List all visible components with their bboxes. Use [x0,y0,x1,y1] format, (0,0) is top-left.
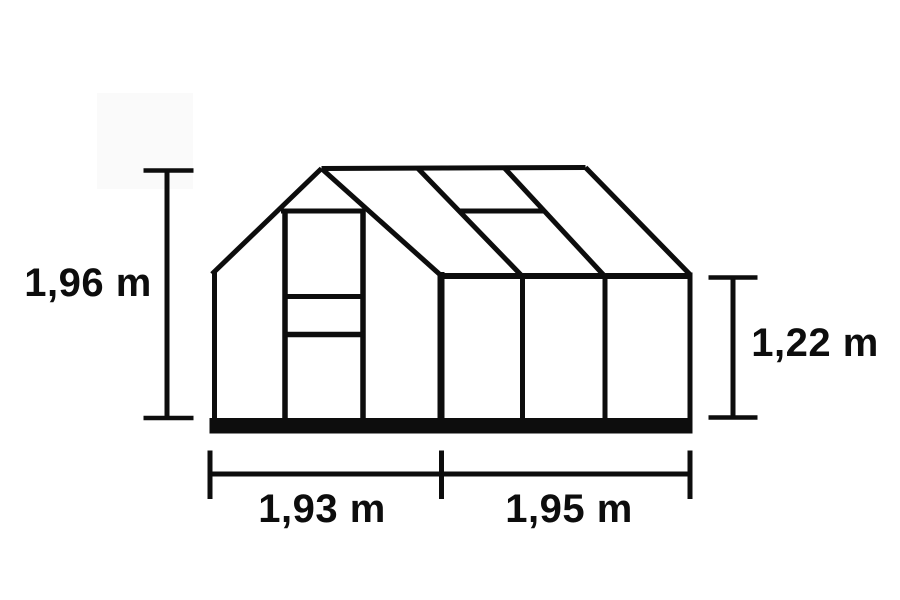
ridge-height-label: 1,96 m [24,261,152,305]
dimension-ridge-height: 1,96 m [24,171,193,419]
side-length-label: 1,95 m [505,487,633,531]
dimension-eave-height: 1,22 m [709,278,879,418]
roof-ridge [322,168,586,169]
roof [322,168,691,277]
eave-height-label: 1,22 m [751,321,879,365]
roof-glazing-bar-2 [504,168,605,277]
greenhouse-drawing [210,168,693,434]
door [281,211,366,420]
faint-background-patch [97,93,193,189]
base-sill [210,418,693,434]
dimension-bottom-widths: 1,93 m 1,95 m [210,451,690,532]
diagram-stage: 1,96 m 1,22 m 1,93 m 1,95 m [0,0,900,600]
front-width-label: 1,93 m [258,487,386,531]
gable-right-roof-slope [322,169,442,276]
roof-glazing-bar-1 [418,168,523,276]
roof-rear-slope [586,168,691,275]
side-wall [441,273,690,421]
greenhouse-dimension-diagram: 1,96 m 1,22 m 1,93 m 1,95 m [0,0,900,600]
gable-left-roof-slope [212,169,322,275]
